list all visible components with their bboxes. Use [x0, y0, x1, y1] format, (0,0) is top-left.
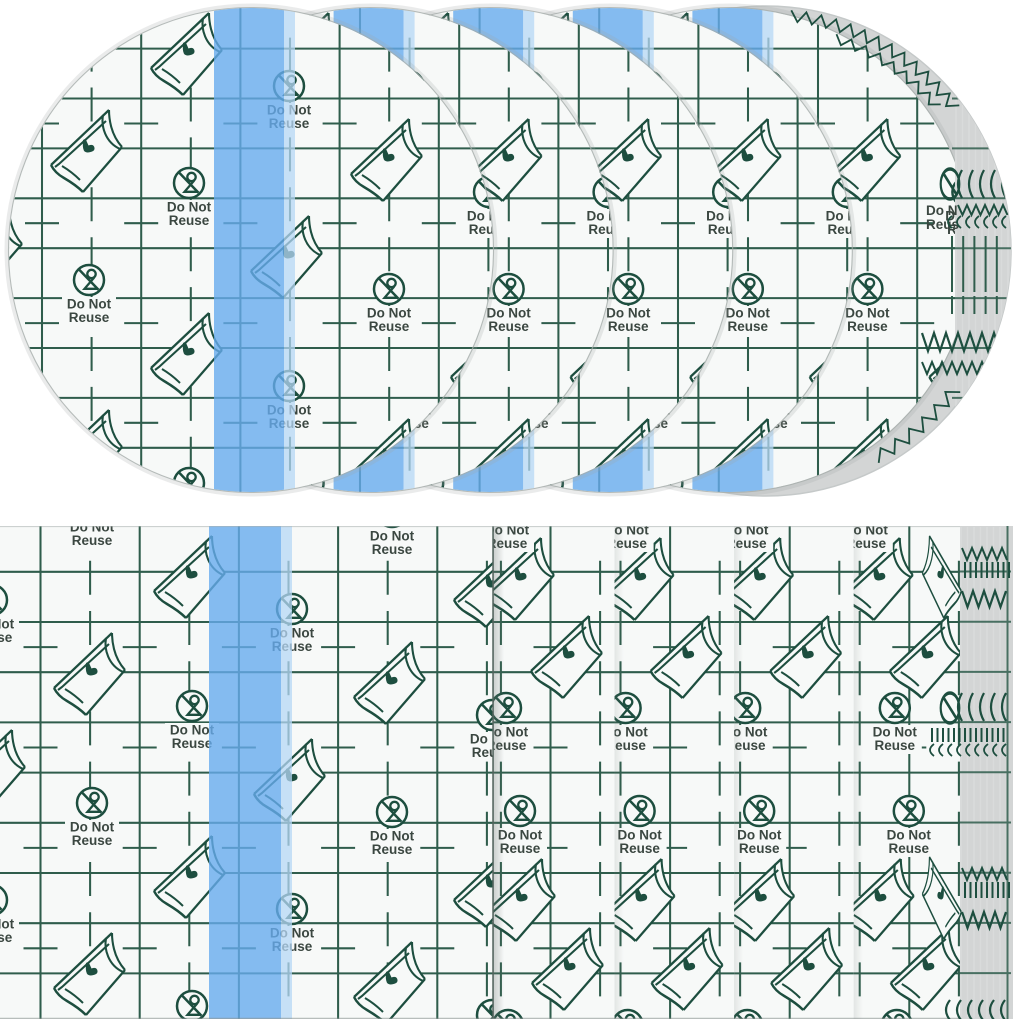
svg-text:Reus: Reus	[926, 217, 959, 232]
svg-text:Do N: Do N	[926, 203, 958, 218]
